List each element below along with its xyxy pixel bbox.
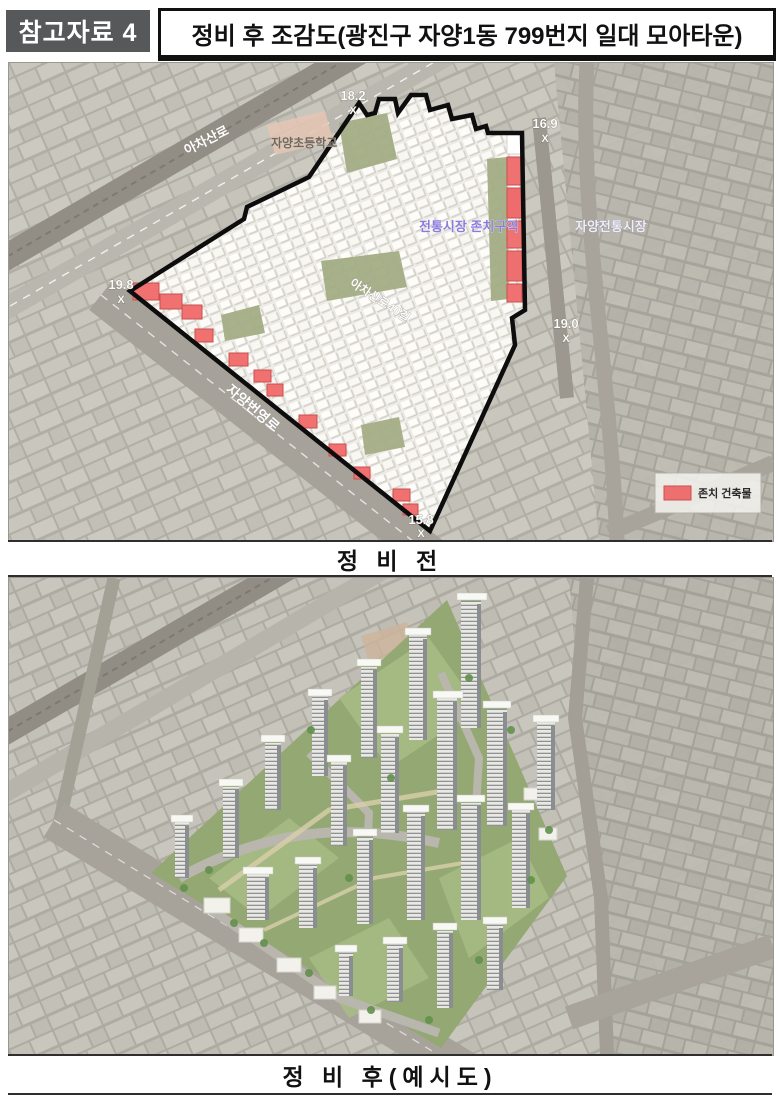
- elevation-marker-x-icon: X: [562, 333, 570, 345]
- elevation-marker-value: 19.0: [553, 316, 578, 331]
- page-title-box: 정비 후 조감도(광진구 자양1동 799번지 일대 모아타운): [158, 8, 776, 61]
- elevation-marker-value: 15.8: [408, 512, 433, 527]
- before-caption: 정 비 전: [337, 542, 443, 576]
- before-aerial-map: 아차산로 아차산로40길 자양번영로 자양초등학교 자양전통시장 전통시장 존치…: [8, 62, 774, 542]
- reference-badge: 참고자료 4: [6, 10, 150, 52]
- before-caption-bar: 정 비 전: [8, 540, 772, 577]
- zone-label-market-preserved: 전통시장 존치구역: [419, 219, 518, 234]
- elevation-marker-x-icon: X: [541, 133, 549, 145]
- legend-label: 존치 건축물: [698, 486, 752, 500]
- reference-badge-label: 참고자료 4: [19, 13, 138, 49]
- after-aerial-rendering: [8, 577, 774, 1056]
- after-caption: 정 비 후(예시도): [282, 1058, 497, 1092]
- elevation-marker-value: 18.2: [340, 88, 365, 103]
- elevation-marker-x-icon: X: [117, 294, 125, 306]
- before-map-svg: 아차산로 아차산로40길 자양번영로 자양초등학교 자양전통시장 전통시장 존치…: [9, 63, 773, 541]
- retained-buildings-market-strip: [507, 133, 522, 302]
- after-map-svg: [9, 578, 773, 1055]
- legend-swatch-retained: [664, 486, 691, 500]
- elevation-marker-x-icon: X: [417, 528, 425, 540]
- place-label-school: 자양초등학교: [271, 135, 337, 150]
- elevation-marker-x-icon: X: [349, 105, 357, 117]
- elevation-marker-value: 16.9: [532, 116, 557, 131]
- after-caption-bar: 정 비 후(예시도): [8, 1054, 772, 1095]
- elevation-marker-value: 19.8: [108, 277, 133, 292]
- page-title: 정비 후 조감도(광진구 자양1동 799번지 일대 모아타운): [192, 16, 743, 51]
- place-label-market: 자양전통시장: [575, 219, 647, 234]
- legend: 존치 건축물: [655, 473, 761, 513]
